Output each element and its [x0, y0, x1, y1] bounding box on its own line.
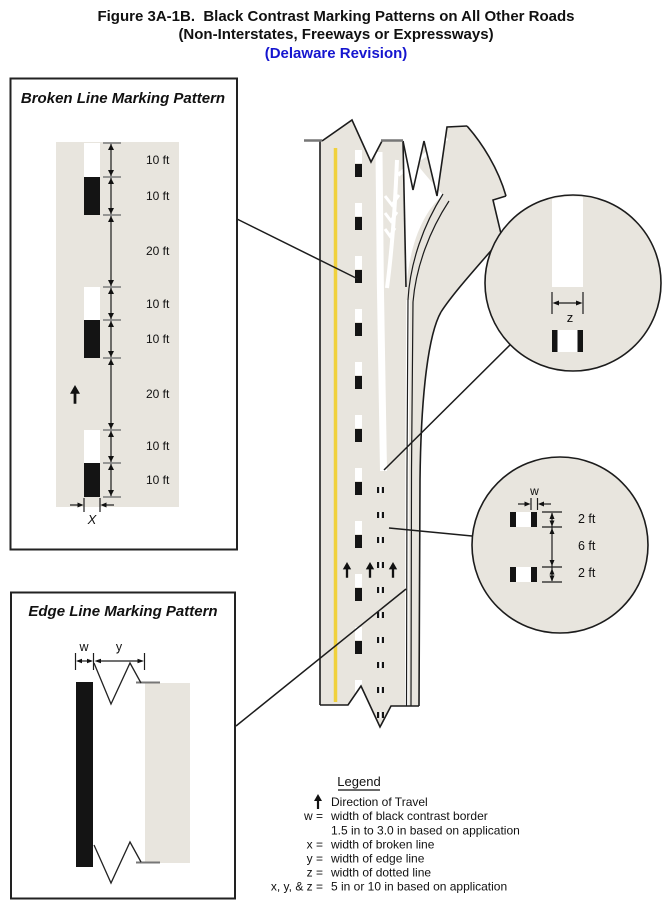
lower-callout: w 2 ft 6 ft 2 ft	[472, 457, 648, 633]
dotted-seg-black	[382, 512, 384, 518]
broken-dash-white	[355, 468, 362, 481]
up-arrow-shaft	[392, 568, 394, 577]
dotted-seg-black	[377, 637, 379, 643]
broken-dash-white	[355, 309, 362, 322]
dotted-seg-black	[377, 587, 379, 593]
dotted-seg-black-border	[510, 567, 516, 582]
w-dimension-label: w	[529, 484, 539, 498]
legend-entry-symbol: x =	[307, 838, 323, 852]
segment-label: 10 ft	[146, 297, 170, 311]
dotted-segment-1	[510, 512, 537, 527]
broken-dash-black	[355, 588, 362, 601]
dotted-segment-2	[510, 567, 537, 582]
edge-line-box-border	[11, 593, 235, 899]
dotted-seg-black-border	[531, 512, 537, 527]
up-arrow-head	[314, 794, 322, 801]
spacing-label-bottom: 2 ft	[578, 566, 596, 580]
dotted-seg-black	[382, 662, 384, 668]
legend-entry-symbol: x, y, & z =	[271, 880, 323, 894]
lower-callout-circle	[472, 457, 648, 633]
figure-title-revision: (Delaware Revision)	[265, 45, 408, 62]
spacing-label-gap: 6 ft	[578, 539, 596, 553]
z-dimension-label: z	[567, 310, 574, 325]
segment-label: 10 ft	[146, 473, 170, 487]
legend-entry-text: width of black contrast border	[330, 809, 488, 823]
up-arrow-shaft	[346, 568, 348, 577]
black-contrast-bar	[76, 682, 93, 867]
dotted-seg-black-border	[578, 330, 584, 352]
legend-entry-text: width of dotted line	[330, 866, 431, 880]
edge-line-box: Edge Line Marking Pattern w y	[11, 593, 235, 899]
dotted-seg-black	[382, 487, 384, 493]
dotted-seg-black	[377, 662, 379, 668]
segment-label: 20 ft	[146, 244, 170, 258]
road-diagram	[304, 120, 506, 727]
white-marking-block	[84, 430, 100, 463]
legend-entry-symbol: w =	[303, 809, 323, 823]
dotted-seg-black	[382, 712, 384, 718]
legend-entry-text: Direction of Travel	[331, 795, 428, 809]
broken-dash-black	[355, 270, 362, 283]
figure-title-line1: Figure 3A-1B. Black Contrast Marking Pat…	[97, 8, 574, 25]
broken-dash-white	[355, 256, 362, 269]
broken-dash-black	[355, 217, 362, 230]
up-arrow-shaft	[369, 568, 371, 577]
wide-lane-line	[379, 152, 384, 471]
up-arrow-shaft	[317, 800, 319, 809]
segment-label: 20 ft	[146, 387, 170, 401]
pavement-panel	[145, 683, 190, 863]
legend-arrow-icon	[314, 794, 322, 809]
legend-entry-text: 5 in or 10 in based on application	[331, 880, 507, 894]
broken-dash-white	[355, 203, 362, 216]
broken-dash-white	[355, 150, 362, 163]
segment-label: 10 ft	[146, 439, 170, 453]
segment-label: 10 ft	[146, 189, 170, 203]
broken-line-box-title: Broken Line Marking Pattern	[21, 90, 225, 107]
w-width-label: w	[78, 640, 89, 654]
figure-canvas: Figure 3A-1B. Black Contrast Marking Pat…	[0, 0, 672, 907]
black-marking-block	[84, 463, 100, 497]
dotted-seg-black	[377, 487, 379, 493]
dotted-seg-black-border	[552, 330, 558, 352]
legend-title: Legend	[337, 774, 380, 789]
edge-line-box-title: Edge Line Marking Pattern	[28, 603, 217, 620]
dotted-seg-black-border	[531, 567, 537, 582]
lane-line-detail	[552, 193, 583, 287]
dotted-seg-black	[377, 712, 379, 718]
dotted-seg-black	[382, 537, 384, 543]
dotted-seg-black	[377, 562, 379, 568]
dotted-segment-detail	[552, 330, 583, 352]
y-width-label: y	[116, 640, 123, 654]
legend-entry-text: 1.5 in to 3.0 in based on application	[331, 824, 520, 838]
dotted-seg-black	[382, 612, 384, 618]
legend-entry-text: width of broken line	[330, 838, 435, 852]
figure-title: Figure 3A-1B. Black Contrast Marking Pat…	[97, 8, 574, 62]
broken-dash-black	[355, 482, 362, 495]
broken-dash-white	[355, 362, 362, 375]
broken-dash-white	[355, 415, 362, 428]
dotted-seg-black	[382, 687, 384, 693]
legend: Legend Direction of Travel w = width of …	[271, 774, 520, 894]
legend-entry-symbol: z =	[307, 866, 323, 880]
dotted-seg-black	[377, 537, 379, 543]
figure-title-line2: (Non-Interstates, Freeways or Expressway…	[178, 26, 493, 43]
dotted-seg-black	[382, 637, 384, 643]
black-marking-block	[84, 177, 100, 215]
spacing-label-top: 2 ft	[578, 512, 596, 526]
broken-dash-black	[355, 641, 362, 654]
dotted-seg-black	[382, 562, 384, 568]
broken-dash-black	[355, 164, 362, 177]
white-marking-block	[84, 287, 100, 320]
dotted-seg-black	[377, 687, 379, 693]
broken-dash-black	[355, 429, 362, 442]
figure-page: Figure 3A-1B. Black Contrast Marking Pat…	[0, 0, 672, 907]
dotted-seg-black-border	[510, 512, 516, 527]
dotted-seg-black	[382, 587, 384, 593]
upper-callout: z	[485, 193, 661, 371]
broken-line-box: Broken Line Marking Pattern 10 ft 10 ft …	[11, 79, 238, 550]
segment-label: 10 ft	[146, 332, 170, 346]
broken-dash-white	[355, 574, 362, 587]
segment-label: 10 ft	[146, 153, 170, 167]
black-marking-block	[84, 320, 100, 358]
dotted-seg-black	[377, 512, 379, 518]
broken-dash-black	[355, 323, 362, 336]
legend-entry-text: width of edge line	[330, 852, 425, 866]
legend-entry-symbol: y =	[307, 852, 323, 866]
broken-dash-white	[355, 521, 362, 534]
broken-dash-black	[355, 535, 362, 548]
x-width-label: X	[87, 512, 98, 527]
broken-dash-black	[355, 376, 362, 389]
up-arrow-shaft	[74, 393, 77, 404]
white-marking-block	[84, 143, 100, 177]
